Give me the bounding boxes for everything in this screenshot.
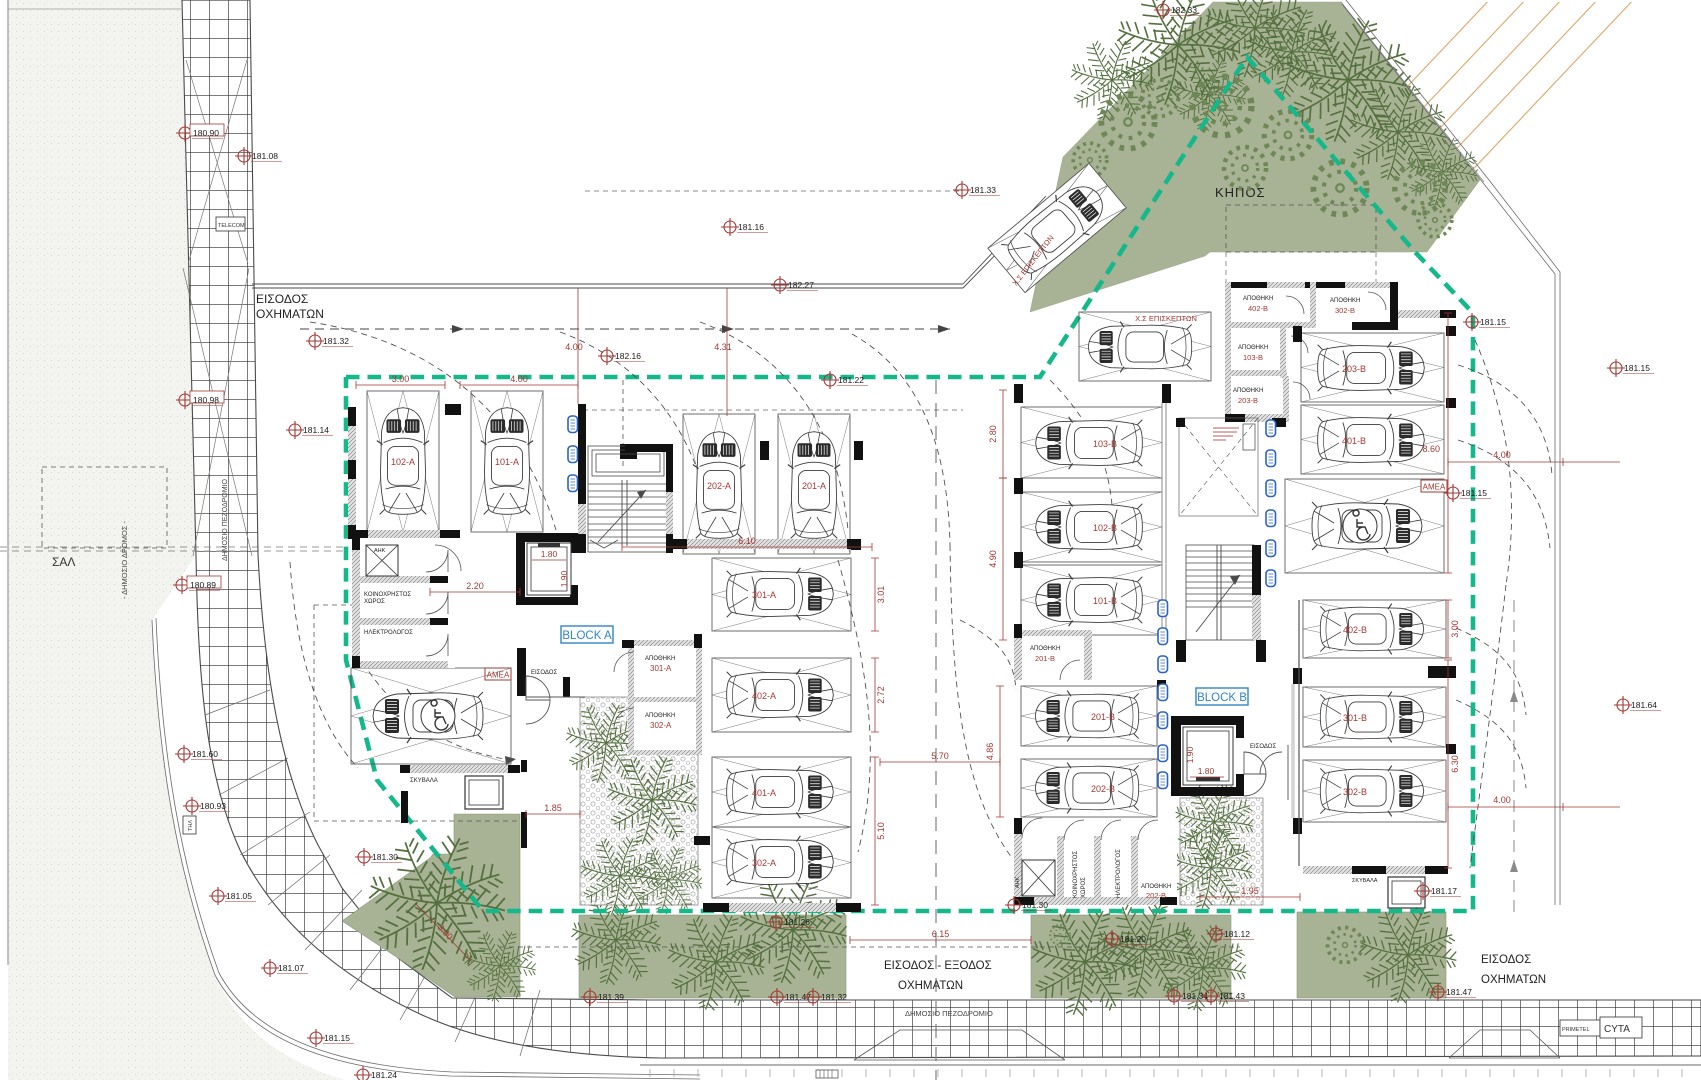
svg-text:181.32: 181.32 [323, 336, 349, 346]
svg-text:102-B: 102-B [1093, 523, 1117, 533]
svg-text:3.00: 3.00 [1450, 620, 1460, 638]
svg-text:181.07: 181.07 [278, 963, 304, 973]
svg-text:302-A: 302-A [752, 858, 776, 868]
svg-text:ΕΙΣΟΔΟΣ: ΕΙΣΟΔΟΣ [1481, 954, 1531, 966]
svg-text:4.86: 4.86 [985, 743, 995, 761]
svg-text:ΚΟΙΝΟΧΡΗΣΤΟΣ: ΚΟΙΝΟΧΡΗΣΤΟΣ [1073, 851, 1079, 898]
svg-text:ΑΠΟΘΗΚΗ: ΑΠΟΘΗΚΗ [645, 713, 675, 719]
svg-text:203-Β: 203-Β [1238, 396, 1258, 405]
svg-text:301-B: 301-B [1343, 713, 1367, 723]
svg-text:ΑΠΟΘΗΚΗ: ΑΠΟΘΗΚΗ [1238, 345, 1268, 351]
svg-text:ΑΗΚ: ΑΗΚ [1015, 876, 1021, 888]
svg-text:Χ.Σ ΕΠΙΣΚΕΠΤΩΝ: Χ.Σ ΕΠΙΣΚΕΠΤΩΝ [1135, 314, 1197, 323]
svg-text:ΣΚΥΒΑΛΑ: ΣΚΥΒΑΛΑ [1352, 878, 1378, 884]
svg-text:181.60: 181.60 [192, 749, 218, 759]
svg-text:1.80: 1.80 [1198, 766, 1215, 776]
svg-text:182.33: 182.33 [1171, 5, 1197, 15]
svg-text:ΗΛΕΚΤΡΟΛΟΓΟΣ: ΗΛΕΚΤΡΟΛΟΓΟΣ [1116, 849, 1122, 898]
svg-text:181.26: 181.26 [784, 917, 810, 927]
svg-text:5.10: 5.10 [876, 822, 886, 840]
svg-text:181.05: 181.05 [226, 891, 252, 901]
svg-text:181.39: 181.39 [598, 992, 624, 1002]
svg-text:TELECOM: TELECOM [218, 223, 245, 229]
svg-text:- ΔΗΜΟΣΙΟ ΔΡΟΜΟΣ -: - ΔΗΜΟΣΙΟ ΔΡΟΜΟΣ - [120, 520, 129, 599]
svg-text:181.30: 181.30 [372, 852, 398, 862]
svg-text:ΕΙΣΟΔΟΣ - ΕΞΟΔΟΣ: ΕΙΣΟΔΟΣ - ΕΞΟΔΟΣ [884, 960, 992, 972]
svg-text:4.90: 4.90 [988, 550, 998, 568]
svg-text:101-A: 101-A [495, 457, 519, 467]
svg-text:PRIMETEL: PRIMETEL [1562, 1027, 1590, 1033]
svg-text:181.33: 181.33 [970, 185, 996, 195]
svg-text:301-A: 301-A [752, 590, 776, 600]
svg-text:ΚΟΙΝΟΧΡΗΣΤΟΣ: ΚΟΙΝΟΧΡΗΣΤΟΣ [364, 592, 411, 598]
svg-text:182.27: 182.27 [788, 280, 814, 290]
svg-text:301-Α: 301-Α [650, 664, 672, 673]
svg-text:BLOCK A: BLOCK A [562, 630, 612, 642]
svg-text:ΑΠΟΘΗΚΗ: ΑΠΟΘΗΚΗ [1030, 646, 1060, 652]
svg-text:ΤΗΛ: ΤΗΛ [188, 820, 194, 831]
svg-text:ΟΧΗΜΑΤΩΝ: ΟΧΗΜΑΤΩΝ [1481, 974, 1546, 986]
svg-text:181.22: 181.22 [838, 375, 864, 385]
svg-text:181.32: 181.32 [821, 992, 847, 1002]
svg-text:3.01: 3.01 [876, 586, 886, 604]
svg-text:181.20: 181.20 [1120, 934, 1146, 944]
svg-text:181.15: 181.15 [1624, 363, 1650, 373]
svg-text:6.10: 6.10 [738, 536, 756, 546]
svg-text:181.15: 181.15 [324, 1033, 350, 1043]
svg-text:4.31: 4.31 [714, 342, 732, 352]
svg-text:4.00: 4.00 [1493, 795, 1511, 805]
svg-text:4.00: 4.00 [510, 374, 528, 384]
svg-text:4.00: 4.00 [565, 342, 583, 352]
svg-text:ΧΩΡΟΣ: ΧΩΡΟΣ [1081, 877, 1087, 898]
svg-text:ΑΠΟΘΗΚΗ: ΑΠΟΘΗΚΗ [1141, 884, 1171, 890]
svg-text:401-A: 401-A [752, 788, 776, 798]
svg-text:ΔΗΜΟΣΙΟ ΠΕΖΟΔΡΟΜΙΟ: ΔΗΜΟΣΙΟ ΠΕΖΟΔΡΟΜΙΟ [222, 478, 229, 561]
svg-text:ΕΙΣΟΔΟΣ: ΕΙΣΟΔΟΣ [531, 670, 557, 676]
svg-text:202-Β: 202-Β [1146, 891, 1166, 900]
svg-text:ΑΠΟΘΗΚΗ: ΑΠΟΘΗΚΗ [1330, 298, 1360, 304]
svg-text:401-B: 401-B [1342, 436, 1366, 446]
svg-text:201-B: 201-B [1091, 712, 1115, 722]
svg-text:181.47: 181.47 [1446, 987, 1472, 997]
svg-text:202-B: 202-B [1091, 784, 1115, 794]
svg-text:ΑΠΟΘΗΚΗ: ΑΠΟΘΗΚΗ [645, 656, 675, 662]
svg-text:ΑΜΕΑ: ΑΜΕΑ [1423, 483, 1446, 492]
svg-text:201-A: 201-A [802, 481, 826, 491]
svg-text:ΑΜΕΑ: ΑΜΕΑ [487, 671, 510, 680]
svg-text:181.43: 181.43 [1219, 991, 1245, 1001]
svg-text:CYTA: CYTA [1604, 1024, 1630, 1035]
svg-text:102-A: 102-A [391, 457, 415, 467]
svg-text:402-A: 402-A [752, 691, 776, 701]
svg-text:1.90: 1.90 [1185, 746, 1195, 763]
svg-text:ΟΧΗΜΑΤΩΝ: ΟΧΗΜΑΤΩΝ [256, 307, 324, 321]
svg-text:203-B: 203-B [1342, 364, 1366, 374]
svg-text:3.00: 3.00 [392, 374, 410, 384]
svg-text:302-Α: 302-Α [650, 721, 672, 730]
svg-text:181.30: 181.30 [1022, 900, 1048, 910]
svg-text:1.95: 1.95 [1241, 886, 1259, 896]
svg-text:8.60: 8.60 [1422, 444, 1440, 454]
svg-text:1.85: 1.85 [544, 803, 562, 813]
svg-text:181.15: 181.15 [1480, 317, 1506, 327]
svg-text:181.08: 181.08 [252, 151, 278, 161]
svg-text:5.70: 5.70 [931, 751, 949, 761]
svg-text:103-Β: 103-Β [1243, 353, 1263, 362]
svg-text:181.14: 181.14 [303, 425, 329, 435]
svg-text:ΣΑΛ: ΣΑΛ [52, 555, 75, 569]
svg-text:402-Β: 402-Β [1248, 304, 1268, 313]
svg-text:181.64: 181.64 [1631, 700, 1657, 710]
svg-text:180.90: 180.90 [193, 128, 219, 138]
svg-text:2.20: 2.20 [466, 581, 484, 591]
svg-text:181.12: 181.12 [1224, 929, 1250, 939]
svg-text:181.16: 181.16 [738, 222, 764, 232]
svg-text:BLOCK B: BLOCK B [1197, 692, 1247, 704]
svg-text:180.93: 180.93 [200, 801, 226, 811]
svg-text:ΑΠΟΘΗΚΗ: ΑΠΟΘΗΚΗ [1243, 296, 1273, 302]
svg-text:201-Β: 201-Β [1035, 654, 1055, 663]
svg-text:2.72: 2.72 [876, 686, 886, 704]
svg-text:1.80: 1.80 [541, 549, 558, 559]
svg-text:4.00: 4.00 [1493, 450, 1511, 460]
svg-text:402-B: 402-B [1343, 625, 1367, 635]
svg-text:302-B: 302-B [1343, 787, 1367, 797]
svg-text:ΑΠΟΘΗΚΗ: ΑΠΟΘΗΚΗ [1233, 388, 1263, 394]
svg-text:180.98: 180.98 [193, 395, 219, 405]
svg-text:181.24: 181.24 [371, 1070, 397, 1080]
svg-text:ΑΗΚ: ΑΗΚ [374, 548, 386, 554]
svg-text:ΕΙΣΟΔΟΣ: ΕΙΣΟΔΟΣ [256, 292, 308, 306]
svg-text:181.17: 181.17 [1431, 886, 1457, 896]
svg-text:302-Β: 302-Β [1335, 306, 1355, 315]
svg-text:103-B: 103-B [1093, 439, 1117, 449]
svg-text:180.89: 180.89 [190, 580, 216, 590]
svg-text:ΟΧΗΜΑΤΩΝ: ΟΧΗΜΑΤΩΝ [898, 980, 963, 992]
svg-text:6.30: 6.30 [1450, 755, 1460, 773]
svg-text:ΔΗΜΟΣΙΟ ΠΕΖΟΔΡΟΜΙΟ: ΔΗΜΟΣΙΟ ΠΕΖΟΔΡΟΜΙΟ [905, 1009, 993, 1018]
svg-text:182.16: 182.16 [615, 351, 641, 361]
svg-text:ΕΙΣΟΔΟΣ: ΕΙΣΟΔΟΣ [1250, 744, 1276, 750]
svg-text:2.80: 2.80 [988, 425, 998, 443]
svg-text:ΗΛΕΚΤΡΟΛΟΓΟΣ: ΗΛΕΚΤΡΟΛΟΓΟΣ [364, 630, 413, 636]
svg-text:202-A: 202-A [707, 481, 731, 491]
svg-text:6.15: 6.15 [932, 929, 950, 939]
svg-text:ΧΩΡΟΣ: ΧΩΡΟΣ [364, 599, 385, 605]
svg-text:181.15: 181.15 [1461, 488, 1487, 498]
svg-text:1.90: 1.90 [559, 570, 569, 587]
svg-text:101-B: 101-B [1093, 596, 1117, 606]
svg-text:ΣΚΥΒΑΛΑ: ΣΚΥΒΑΛΑ [410, 778, 438, 784]
